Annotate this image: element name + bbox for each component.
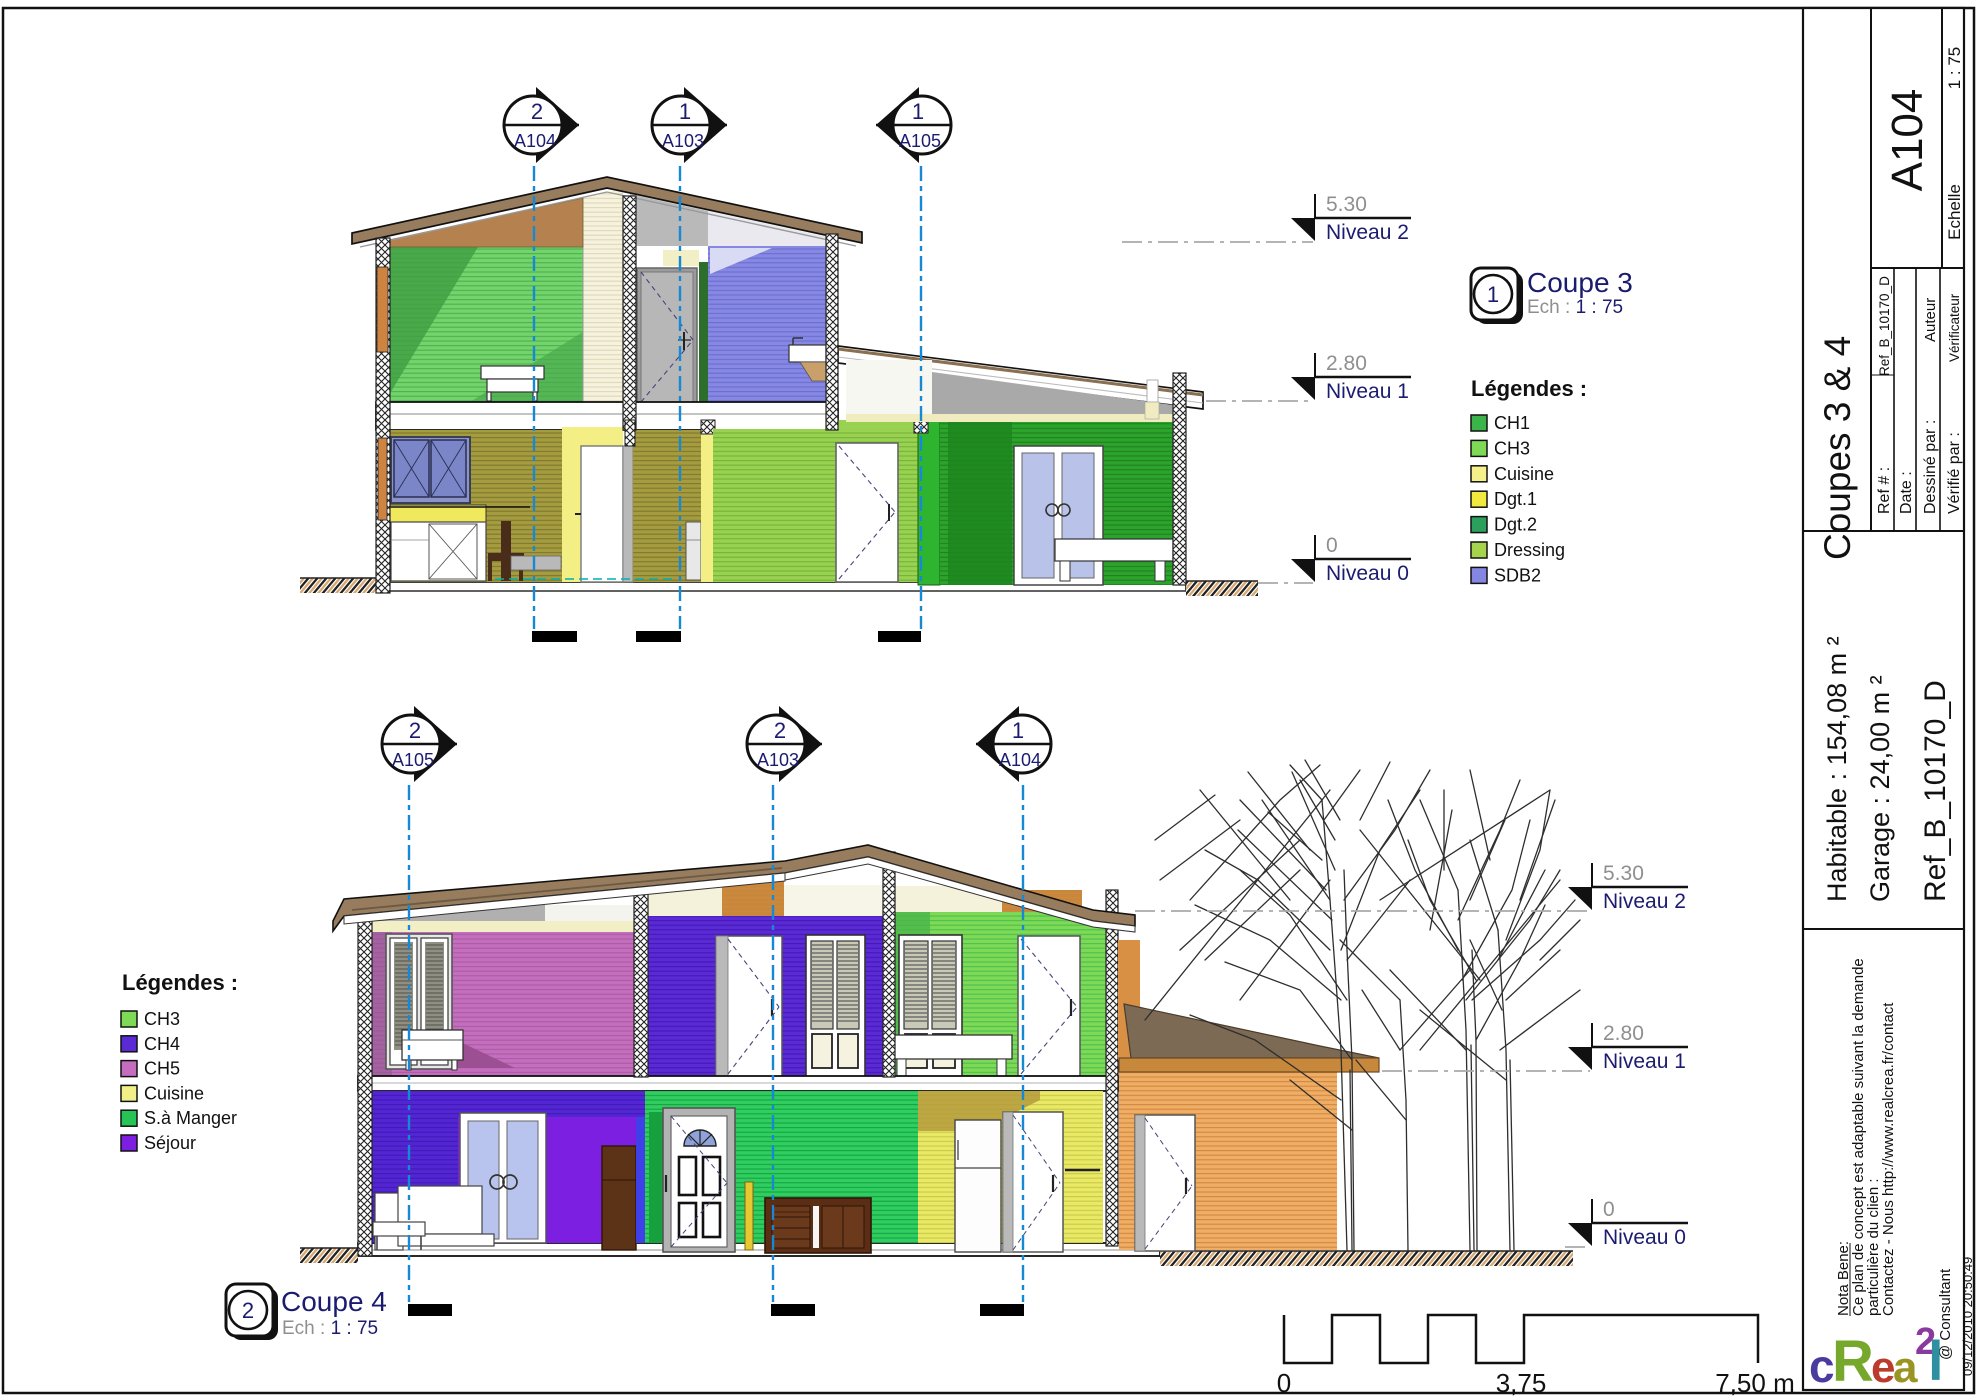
svg-text:1: 1 xyxy=(1012,718,1024,743)
svg-text:Niveau 2: Niveau 2 xyxy=(1603,890,1686,913)
svg-text:5.30: 5.30 xyxy=(1603,862,1644,885)
svg-text:Légendes :: Légendes : xyxy=(1471,376,1587,401)
svg-text:R: R xyxy=(1832,1329,1874,1394)
svg-text:Ech : 1 : 75: Ech : 1 : 75 xyxy=(1527,297,1623,318)
svg-text:Niveau 0: Niveau 0 xyxy=(1326,562,1409,585)
svg-text:5.30: 5.30 xyxy=(1326,193,1367,216)
svg-text:Dessiné par :: Dessiné par : xyxy=(1922,420,1939,514)
svg-text:Ref_B_10170_D: Ref_B_10170_D xyxy=(1877,276,1892,376)
svg-text:Vérifié par :: Vérifié par : xyxy=(1946,432,1963,514)
svg-text:S.à Manger: S.à Manger xyxy=(144,1108,237,1128)
svg-text:Coupes 3 & 4: Coupes 3 & 4 xyxy=(1817,336,1858,560)
svg-text:2.80: 2.80 xyxy=(1603,1022,1644,1045)
svg-text:Coupe 4: Coupe 4 xyxy=(281,1286,387,1317)
svg-text:Niveau 1: Niveau 1 xyxy=(1326,380,1409,403)
svg-text:Cuisine: Cuisine xyxy=(144,1083,204,1103)
svg-text:Dressing: Dressing xyxy=(1494,540,1565,560)
svg-text:Garage : 24,00 m ²: Garage : 24,00 m ² xyxy=(1865,675,1895,902)
svg-text:1: 1 xyxy=(912,99,924,124)
svg-text:Séjour: Séjour xyxy=(144,1133,196,1153)
svg-text:A104: A104 xyxy=(514,131,556,151)
svg-text:Habitable : 154,08 m ²: Habitable : 154,08 m ² xyxy=(1822,636,1852,902)
svg-text:Ech : 1 : 75: Ech : 1 : 75 xyxy=(282,1318,378,1339)
svg-text:Cuisine: Cuisine xyxy=(1494,464,1554,484)
svg-text:A105: A105 xyxy=(392,750,434,770)
svg-text:CH5: CH5 xyxy=(144,1059,180,1079)
svg-text:A105: A105 xyxy=(899,131,941,151)
svg-text:3,75: 3,75 xyxy=(1496,1368,1547,1398)
svg-text:Ref_B_10170_D: Ref_B_10170_D xyxy=(1919,680,1952,902)
svg-text:1: 1 xyxy=(679,99,691,124)
svg-text:1 : 75: 1 : 75 xyxy=(1945,47,1964,90)
svg-text:0: 0 xyxy=(1326,534,1338,557)
svg-text:CH4: CH4 xyxy=(144,1034,180,1054)
svg-text:2: 2 xyxy=(774,718,786,743)
svg-text:Coupe 3: Coupe 3 xyxy=(1527,267,1633,298)
svg-text:A104: A104 xyxy=(999,750,1041,770)
svg-text:A103: A103 xyxy=(662,131,704,151)
svg-text:Niveau 0: Niveau 0 xyxy=(1603,1226,1686,1249)
svg-text:Date :: Date : xyxy=(1898,471,1915,514)
svg-text:A104: A104 xyxy=(1883,89,1932,192)
svg-text:0: 0 xyxy=(1277,1368,1291,1398)
svg-text:Niveau 2: Niveau 2 xyxy=(1326,221,1409,244)
svg-text:Echelle: Echelle xyxy=(1945,184,1964,240)
svg-text:2: 2 xyxy=(242,1298,254,1323)
svg-text:Dgt.1: Dgt.1 xyxy=(1494,489,1537,509)
svg-text:Légendes :: Légendes : xyxy=(122,970,238,995)
svg-text:Contactez - Nous http://www.re: Contactez - Nous http://www.realcrea.fr/… xyxy=(1880,1002,1897,1316)
svg-text:Dgt.2: Dgt.2 xyxy=(1494,515,1537,535)
svg-text:09/12/2010 20:50:49: 09/12/2010 20:50:49 xyxy=(1960,1257,1975,1376)
svg-text:1: 1 xyxy=(1487,282,1499,307)
svg-text:Niveau 1: Niveau 1 xyxy=(1603,1050,1686,1073)
svg-text:2: 2 xyxy=(409,718,421,743)
svg-text:0: 0 xyxy=(1603,1198,1615,1221)
svg-text:Vérificateur: Vérificateur xyxy=(1947,293,1962,362)
svg-text:2: 2 xyxy=(531,99,543,124)
svg-text:Ref # :: Ref # : xyxy=(1876,467,1893,514)
svg-text:e: e xyxy=(1871,1343,1895,1392)
svg-text:2.80: 2.80 xyxy=(1326,352,1367,375)
svg-text:CH3: CH3 xyxy=(144,1009,180,1029)
svg-text:Auteur: Auteur xyxy=(1922,298,1939,342)
svg-text:SDB2: SDB2 xyxy=(1494,565,1541,585)
svg-text:7,50 m: 7,50 m xyxy=(1715,1368,1795,1398)
svg-text:A103: A103 xyxy=(757,750,799,770)
svg-text:l: l xyxy=(1928,1329,1944,1392)
svg-text:c: c xyxy=(1809,1340,1835,1392)
svg-text:CH1: CH1 xyxy=(1494,413,1530,433)
svg-text:CH3: CH3 xyxy=(1494,438,1530,458)
